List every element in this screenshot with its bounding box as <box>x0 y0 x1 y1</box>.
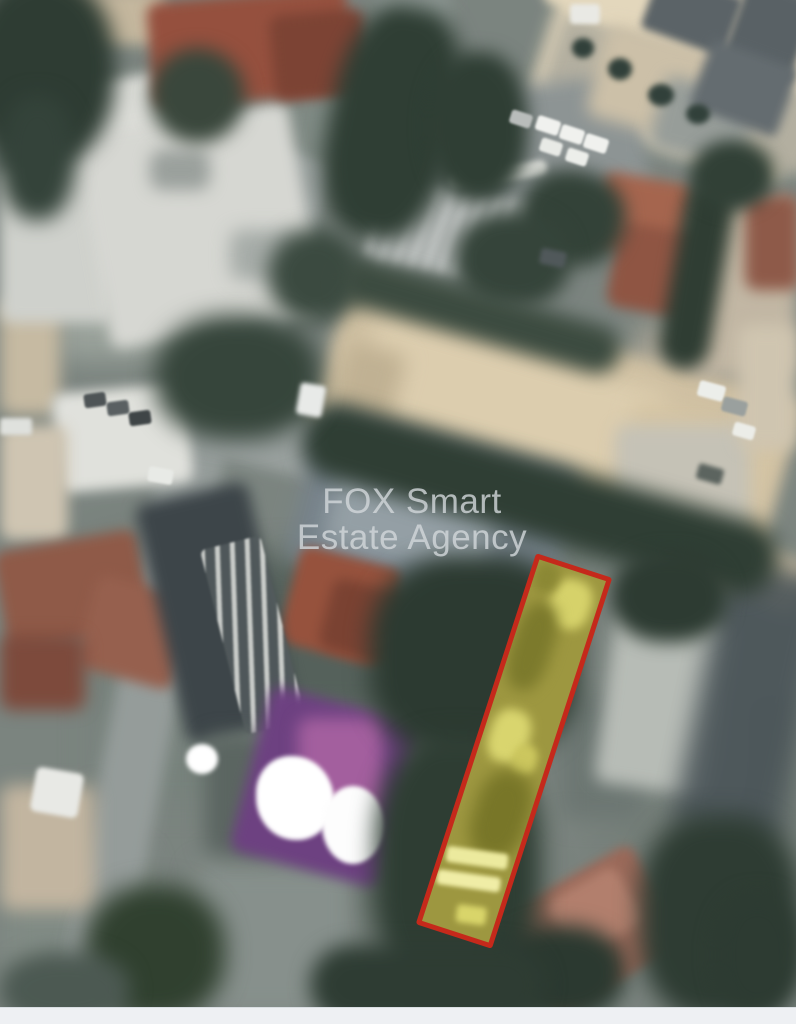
red-roof-building <box>0 635 85 710</box>
bush <box>572 38 594 58</box>
bush <box>608 58 632 80</box>
tree-cluster <box>155 315 320 440</box>
watermark-line2: Estate Agency <box>297 520 527 556</box>
car <box>0 418 32 435</box>
watermark-line1: FOX Smart <box>297 484 527 520</box>
page-bottom-strip <box>0 1007 796 1024</box>
satellite-map: FOX Smart Estate Agency <box>0 0 796 1024</box>
plot-ground-stripe <box>436 869 501 893</box>
tree-cluster <box>150 48 245 143</box>
plot-ground-stripe <box>455 904 487 926</box>
red-roof-building <box>745 195 796 290</box>
van <box>29 766 84 819</box>
tree-cluster <box>0 95 75 220</box>
tree-cluster <box>612 552 727 642</box>
car <box>295 382 326 418</box>
bright-roof-blob <box>186 744 218 774</box>
tree-cluster <box>690 140 775 210</box>
tree-cluster <box>428 52 528 202</box>
building-roof <box>0 425 68 540</box>
roof-detail <box>150 150 210 190</box>
bush <box>686 104 710 124</box>
car <box>570 4 600 24</box>
tree-cluster <box>715 895 796 1015</box>
bush <box>648 84 674 106</box>
watermark: FOX Smart Estate Agency <box>297 484 527 556</box>
